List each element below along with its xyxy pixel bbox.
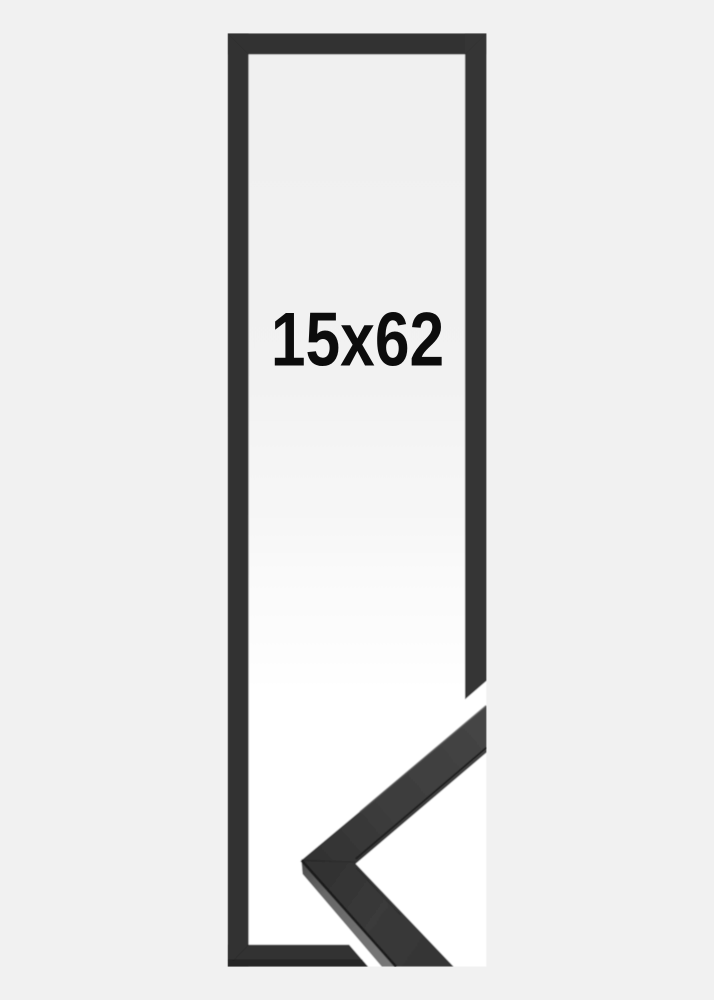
svg-text:15x62: 15x62 <box>271 297 444 382</box>
